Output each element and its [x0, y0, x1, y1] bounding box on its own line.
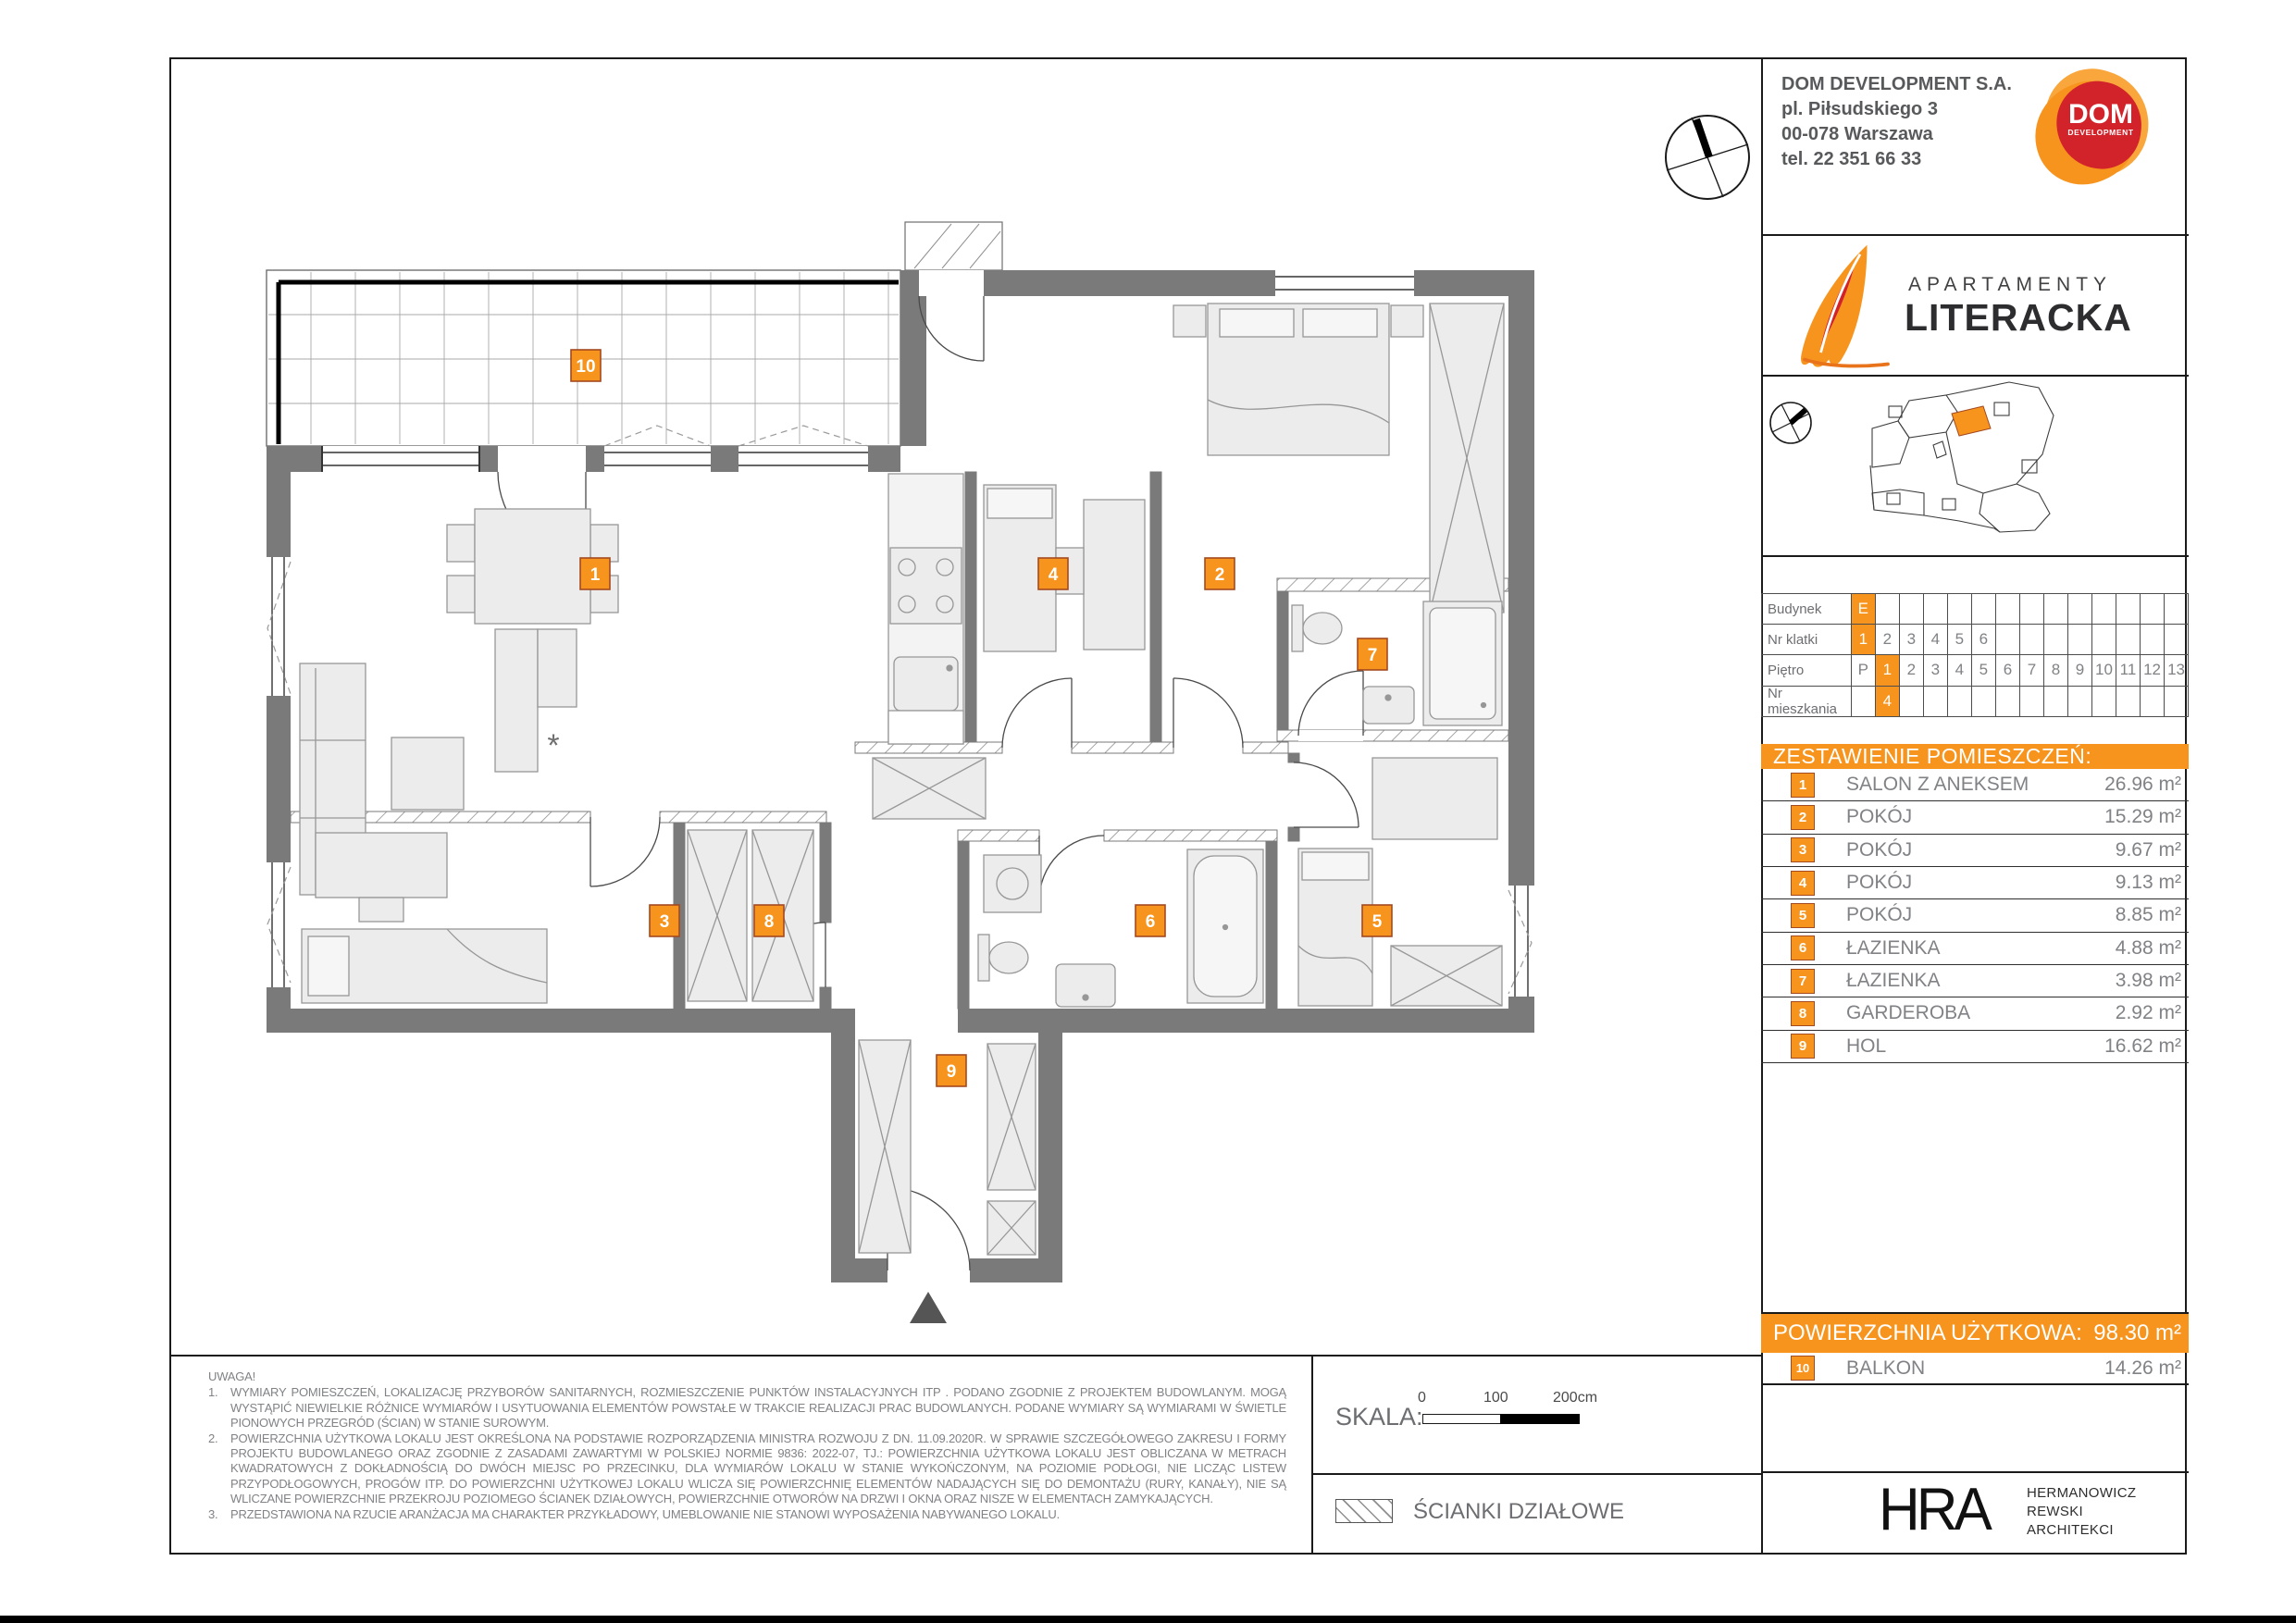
door-room4	[1002, 678, 1072, 748]
unit-info-cell	[2044, 625, 2068, 655]
unit-info-cell	[1972, 687, 1996, 717]
unit-info-label: Nr klatki	[1762, 625, 1852, 655]
balcony-badge: 10	[1791, 1356, 1815, 1381]
badge-room-5: 5	[1362, 905, 1392, 936]
unit-info-cell: 6	[1972, 625, 1996, 655]
room-row-area: 4.88 m²	[2116, 937, 2181, 960]
room-row-name: GARDEROBA	[1846, 1002, 2116, 1024]
divider	[1761, 1471, 2189, 1473]
room5-desk	[1372, 758, 1497, 839]
room-row-badge: 6	[1791, 935, 1815, 960]
badge-room-9: 9	[937, 1055, 966, 1086]
unit-info-row-budynek: BudynekE	[1762, 594, 2189, 625]
room-row-2: 2POKÓJ15.29 m²	[1761, 801, 2189, 834]
room-row-name: POKÓJ	[1846, 904, 2116, 926]
room-row-badge: 3	[1791, 837, 1815, 862]
unit-info-cell	[2116, 687, 2141, 717]
unit-info-cell: 3	[1924, 655, 1948, 686]
svg-text:8: 8	[764, 912, 775, 932]
room-row-name: ŁAZIENKA	[1846, 970, 2116, 992]
brand-apartamenty: APARTAMENTY	[1908, 274, 2112, 296]
architect-logo: HRA HERMANOWICZ REWSKI ARCHITEKCI	[1869, 1479, 2175, 1549]
room-row-badge: 2	[1791, 805, 1815, 830]
window-salon-left	[267, 557, 291, 696]
unit-info-cell	[1924, 594, 1948, 625]
window-room2-top	[1275, 270, 1414, 296]
floorplan-sheet: { "colors": {"accent":"#F7941E","badge_b…	[0, 0, 2296, 1623]
door-room5	[1294, 762, 1359, 827]
usable-area-label: POWIERZCHNIA UŻYTKOWA:	[1773, 1320, 2082, 1346]
note-item-3: 3. PRZEDSTAWIONA NA RZUCIE ARANŻACJA MA …	[208, 1507, 1286, 1522]
balcony-row: 10 BALKON 14.26 m²	[1761, 1353, 2189, 1385]
badge-room-8: 8	[754, 905, 784, 936]
room3-chair	[359, 898, 403, 922]
developer-name: DOM DEVELOPMENT S.A.	[1781, 72, 2031, 97]
brand-literacka: LITERACKA	[1905, 296, 2132, 340]
unit-info-cell	[2068, 594, 2092, 625]
unit-info-cell	[2092, 687, 2116, 717]
door-balcony-room2	[919, 270, 984, 361]
badge-room-2: 2	[1205, 558, 1235, 589]
room-row-6: 6ŁAZIENKA4.88 m²	[1761, 933, 2189, 965]
scale-label: SKALA:	[1335, 1403, 1423, 1431]
unit-info-cell	[1972, 594, 1996, 625]
room-row-4: 4POKÓJ9.13 m²	[1761, 867, 2189, 899]
unit-info-cell: 4	[1876, 687, 1900, 717]
north-compass-icon	[1666, 116, 1749, 199]
unit-info-cell: 2	[1876, 625, 1900, 655]
room-row-area: 2.92 m²	[2116, 1002, 2181, 1024]
architect-lines: HERMANOWICZ REWSKI ARCHITEKCI	[2027, 1484, 2136, 1540]
unit-info-cell: 13	[2165, 655, 2189, 686]
hall-cabinet	[873, 758, 986, 819]
divider	[1761, 234, 2189, 236]
balcony-name: BALKON	[1846, 1357, 2104, 1380]
unit-info-cell: E	[1852, 594, 1876, 625]
unit-info-cell: 9	[2068, 655, 2092, 686]
developer-address-1: pl. Piłsudskiego 3	[1781, 97, 2031, 122]
unit-info-cell: 1	[1876, 655, 1900, 686]
unit-info-label: Piętro	[1762, 655, 1852, 686]
unit-info-cell: 5	[1948, 625, 1972, 655]
unit-info-cell	[2020, 687, 2044, 717]
door-bath6	[1039, 836, 1104, 900]
svg-text:9: 9	[947, 1062, 957, 1082]
unit-info-cell	[2092, 594, 2116, 625]
svg-text:10: 10	[576, 357, 595, 377]
room-row-badge: 4	[1791, 871, 1815, 896]
room-row-3: 3POKÓJ9.67 m²	[1761, 835, 2189, 867]
svg-text:*: *	[547, 728, 559, 763]
door-bath7	[1298, 671, 1363, 741]
window-room5-right	[1508, 886, 1534, 997]
room2-wardrobe	[1430, 304, 1504, 613]
svg-text:5: 5	[1372, 912, 1383, 932]
building-outline	[1870, 382, 2054, 532]
developer-address-2: 00-078 Warszawa	[1781, 122, 2031, 147]
unit-info-label: Nr mieszkania	[1762, 687, 1852, 717]
badge-room-4: 4	[1038, 558, 1068, 589]
window-salon-top	[322, 446, 479, 472]
unit-info-cell: 8	[2044, 655, 2068, 686]
entrance-arrow	[910, 1292, 947, 1323]
logo-text: DOM DEVELOPMENT	[2062, 102, 2140, 137]
badge-room-6: 6	[1136, 905, 1165, 936]
rooms-table-header: ZESTAWIENIE POMIESZCZEŃ:	[1761, 744, 2189, 769]
unit-info-cell	[1924, 687, 1948, 717]
badge-room-10: 10	[571, 350, 601, 381]
room-row-8: 8GARDEROBA2.92 m²	[1761, 997, 2189, 1030]
unit-info-cell	[1900, 687, 1924, 717]
balcony-slab-right	[905, 222, 1002, 270]
unit-info-table: BudynekENr klatki123456PiętroP1234567891…	[1761, 593, 2189, 717]
door-room2	[1173, 678, 1243, 748]
room-row-badge: 7	[1791, 969, 1815, 994]
unit-info-cell	[2141, 687, 2165, 717]
room-row-badge: 1	[1791, 773, 1815, 798]
room4-desk	[1084, 500, 1145, 650]
unit-info-cell	[2165, 687, 2189, 717]
unit-info-cell	[2165, 625, 2189, 655]
rooms-table: 1SALON Z ANEKSEM26.96 m²2POKÓJ15.29 m²3P…	[1761, 769, 2189, 1063]
room-row-area: 3.98 m²	[2116, 970, 2181, 992]
salon-coffee-table	[391, 737, 464, 810]
window-room3-left	[267, 862, 291, 987]
door-room3	[590, 817, 660, 886]
unit-info-cell: 4	[1948, 655, 1972, 686]
room-row-name: POKÓJ	[1846, 806, 2104, 828]
architect-abbr: HRA	[1879, 1475, 1989, 1544]
unit-info-cell	[2068, 625, 2092, 655]
usable-area-value: 98.30 m²	[2093, 1320, 2181, 1346]
salon-tv-unit: *	[495, 629, 577, 772]
unit-info-cell: 6	[1996, 655, 2020, 686]
bath6-fixtures	[978, 849, 1263, 1007]
note-item-2: 2. POWIERZCHNIA UŻYTKOWA LOKALU JEST OKR…	[208, 1431, 1286, 1507]
room-row-1: 1SALON Z ANEKSEM26.96 m²	[1761, 769, 2189, 801]
unit-info-cell	[1996, 625, 2020, 655]
balcony-area: 14.26 m²	[2104, 1357, 2181, 1380]
dom-development-logo: DOM DEVELOPMENT	[2034, 63, 2164, 192]
room-row-area: 9.67 m²	[2116, 839, 2181, 861]
unit-info-cell: 1	[1852, 625, 1876, 655]
kitchen	[888, 474, 963, 744]
floor-plan-drawing: *	[169, 57, 1761, 1355]
room-row-area: 9.13 m²	[2116, 872, 2181, 894]
room-row-5: 5POKÓJ8.85 m²	[1761, 899, 2189, 932]
bath7-fixtures	[1292, 601, 1502, 725]
unit-info-row-nr-klatki: Nr klatki123456	[1762, 625, 2189, 655]
room-row-badge: 8	[1791, 1001, 1815, 1026]
unit-info-cell	[2044, 687, 2068, 717]
room-row-area: 15.29 m²	[2104, 806, 2181, 828]
feather-icon	[1786, 242, 1902, 370]
unit-info-row-piętro: PiętroP12345678910111213	[1762, 655, 2189, 686]
unit-info-cell: 5	[1972, 655, 1996, 686]
unit-info-cell	[2116, 594, 2141, 625]
room-row-area: 8.85 m²	[2116, 904, 2181, 926]
unit-info-cell	[1996, 687, 2020, 717]
unit-info-cell	[2141, 625, 2165, 655]
room-row-name: HOL	[1846, 1035, 2104, 1058]
divider	[1311, 1473, 1761, 1475]
room3-desk	[316, 833, 447, 898]
svg-text:4: 4	[1049, 565, 1059, 585]
unit-info-cell	[1996, 594, 2020, 625]
unit-info-cell	[1948, 687, 1972, 717]
svg-text:1: 1	[590, 565, 601, 585]
unit-info-cell	[1876, 594, 1900, 625]
site-compass-icon	[1770, 403, 1811, 443]
unit-info-cell: 4	[1924, 625, 1948, 655]
room-row-name: SALON Z ANEKSEM	[1846, 774, 2104, 796]
svg-text:3: 3	[660, 912, 670, 932]
page-bottom-edge	[0, 1616, 2296, 1623]
svg-text:2: 2	[1215, 565, 1225, 585]
room-row-name: ŁAZIENKA	[1846, 937, 2116, 960]
room-row-badge: 9	[1791, 1034, 1815, 1059]
unit-info-cell: 10	[2092, 655, 2116, 686]
unit-info-cell	[2020, 594, 2044, 625]
unit-info-cell	[2116, 625, 2141, 655]
usable-area-bar: POWIERZCHNIA UŻYTKOWA: 98.30 m²	[1761, 1314, 2189, 1353]
room-row-name: POKÓJ	[1846, 839, 2116, 861]
unit-info-cell	[2092, 625, 2116, 655]
badge-room-3: 3	[650, 905, 679, 936]
notes-block: UWAGA! 1. WYMIARY POMIESZCZEŃ, LOKALIZAC…	[208, 1369, 1286, 1522]
scale-bar-black-half	[1500, 1414, 1580, 1424]
room3-bed	[302, 929, 547, 1003]
scale-tick-200: 200cm	[1553, 1390, 1597, 1406]
unit-info-cell: 12	[2141, 655, 2165, 686]
unit-info-cell: 7	[2020, 655, 2044, 686]
developer-phone: tel. 22 351 66 33	[1781, 147, 2031, 172]
room2-bed	[1173, 304, 1423, 455]
room-row-name: POKÓJ	[1846, 872, 2116, 894]
unit-info-cell	[1948, 594, 1972, 625]
scale-tick-0: 0	[1418, 1390, 1426, 1406]
divider	[1761, 555, 2189, 557]
unit-info-cell: 2	[1900, 655, 1924, 686]
highlighted-unit	[1952, 406, 1991, 436]
unit-info-cell	[2068, 687, 2092, 717]
divider	[1311, 1355, 1313, 1555]
unit-info-label: Budynek	[1762, 594, 1852, 625]
divider	[169, 1355, 1761, 1357]
unit-info-row-nr-mieszkania: Nr mieszkania4	[1762, 687, 2189, 717]
developer-info: DOM DEVELOPMENT S.A. pl. Piłsudskiego 3 …	[1781, 72, 2031, 172]
unit-info-cell	[1900, 594, 1924, 625]
room5-bed	[1298, 849, 1372, 1006]
unit-info-cell	[2141, 594, 2165, 625]
room-row-area: 26.96 m²	[2104, 774, 2181, 796]
unit-info-cell: 3	[1900, 625, 1924, 655]
svg-text:6: 6	[1146, 912, 1156, 932]
room-row-9: 9HOL16.62 m²	[1761, 1031, 2189, 1063]
partition-legend-label: ŚCIANKI DZIAŁOWE	[1413, 1499, 1624, 1525]
room5-wardrobe	[1391, 946, 1502, 1006]
unit-info-cell	[2165, 594, 2189, 625]
garderoba-wardrobes	[688, 830, 813, 1001]
unit-info-cell	[2044, 594, 2068, 625]
room-row-7: 7ŁAZIENKA3.98 m²	[1761, 965, 2189, 997]
site-plan-map	[1761, 375, 2189, 555]
unit-info-cell: P	[1852, 655, 1876, 686]
scale-tick-100: 100	[1483, 1390, 1508, 1406]
svg-text:7: 7	[1368, 646, 1378, 665]
unit-info-cell	[1852, 687, 1876, 717]
notes-title: UWAGA!	[208, 1369, 1286, 1384]
room-row-badge: 5	[1791, 903, 1815, 928]
unit-info-cell	[2020, 625, 2044, 655]
room-row-area: 16.62 m²	[2104, 1035, 2181, 1058]
badge-room-7: 7	[1358, 638, 1387, 670]
unit-info-cell: 11	[2116, 655, 2141, 686]
partition-legend-swatch	[1335, 1499, 1393, 1523]
badge-room-1: 1	[580, 558, 610, 589]
note-item-1: 1. WYMIARY POMIESZCZEŃ, LOKALIZACJĘ PRZY…	[208, 1385, 1286, 1431]
scale-bar	[1422, 1414, 1580, 1424]
